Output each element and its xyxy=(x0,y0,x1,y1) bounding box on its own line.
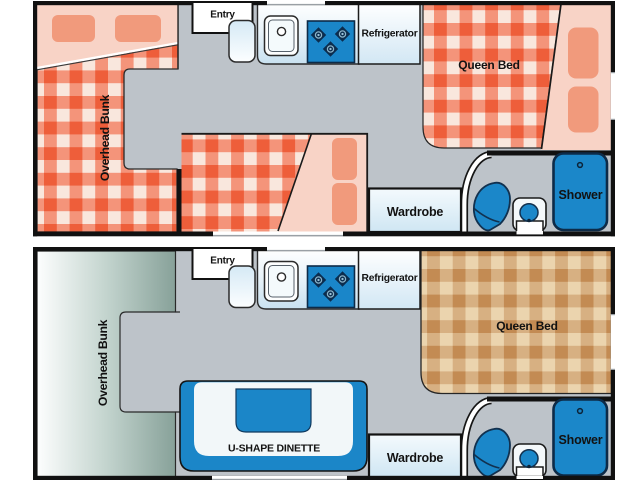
svg-text:Overhead Bunk: Overhead Bunk xyxy=(98,94,112,181)
svg-text:U-SHAPE DINETTE: U-SHAPE DINETTE xyxy=(228,443,320,455)
svg-text:Queen Bed: Queen Bed xyxy=(496,319,558,333)
svg-text:Shower: Shower xyxy=(559,433,603,447)
svg-text:Wardrobe: Wardrobe xyxy=(387,205,444,219)
svg-text:Refrigerator: Refrigerator xyxy=(362,29,418,40)
svg-text:Refrigerator: Refrigerator xyxy=(362,273,418,284)
svg-text:Shower: Shower xyxy=(559,188,603,202)
svg-text:Entry: Entry xyxy=(210,256,235,267)
svg-text:Entry: Entry xyxy=(210,10,235,21)
svg-text:Overhead Bunk: Overhead Bunk xyxy=(96,319,110,406)
svg-text:Queen Bed: Queen Bed xyxy=(458,58,520,72)
svg-text:Wardrobe: Wardrobe xyxy=(387,451,444,465)
